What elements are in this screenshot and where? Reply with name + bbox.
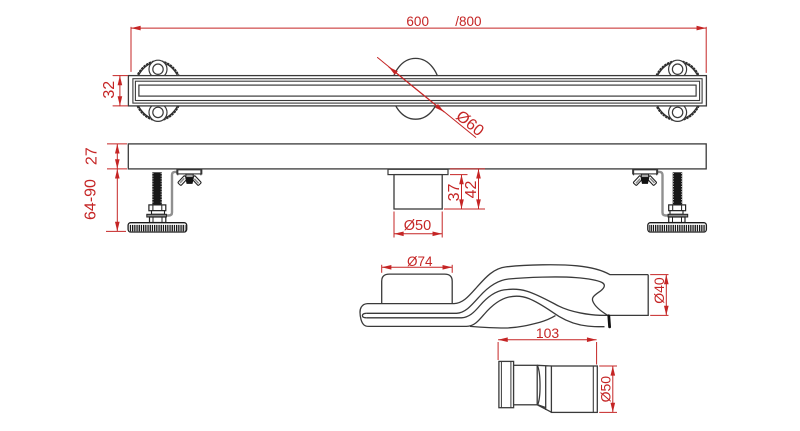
svg-text:600: 600: [406, 14, 429, 29]
svg-text:42: 42: [463, 181, 480, 199]
svg-text:Ø50: Ø50: [598, 376, 614, 403]
svg-text:32: 32: [101, 81, 118, 99]
svg-text:Ø40: Ø40: [651, 277, 667, 304]
svg-text:64-90: 64-90: [82, 179, 99, 220]
svg-text:/800: /800: [455, 14, 481, 29]
svg-text:103: 103: [536, 325, 560, 341]
svg-text:Ø74: Ø74: [407, 254, 433, 269]
svg-text:Ø50: Ø50: [404, 218, 431, 234]
svg-text:27: 27: [84, 147, 101, 165]
svg-text:Ø60: Ø60: [453, 108, 487, 140]
svg-text:37: 37: [446, 184, 463, 202]
